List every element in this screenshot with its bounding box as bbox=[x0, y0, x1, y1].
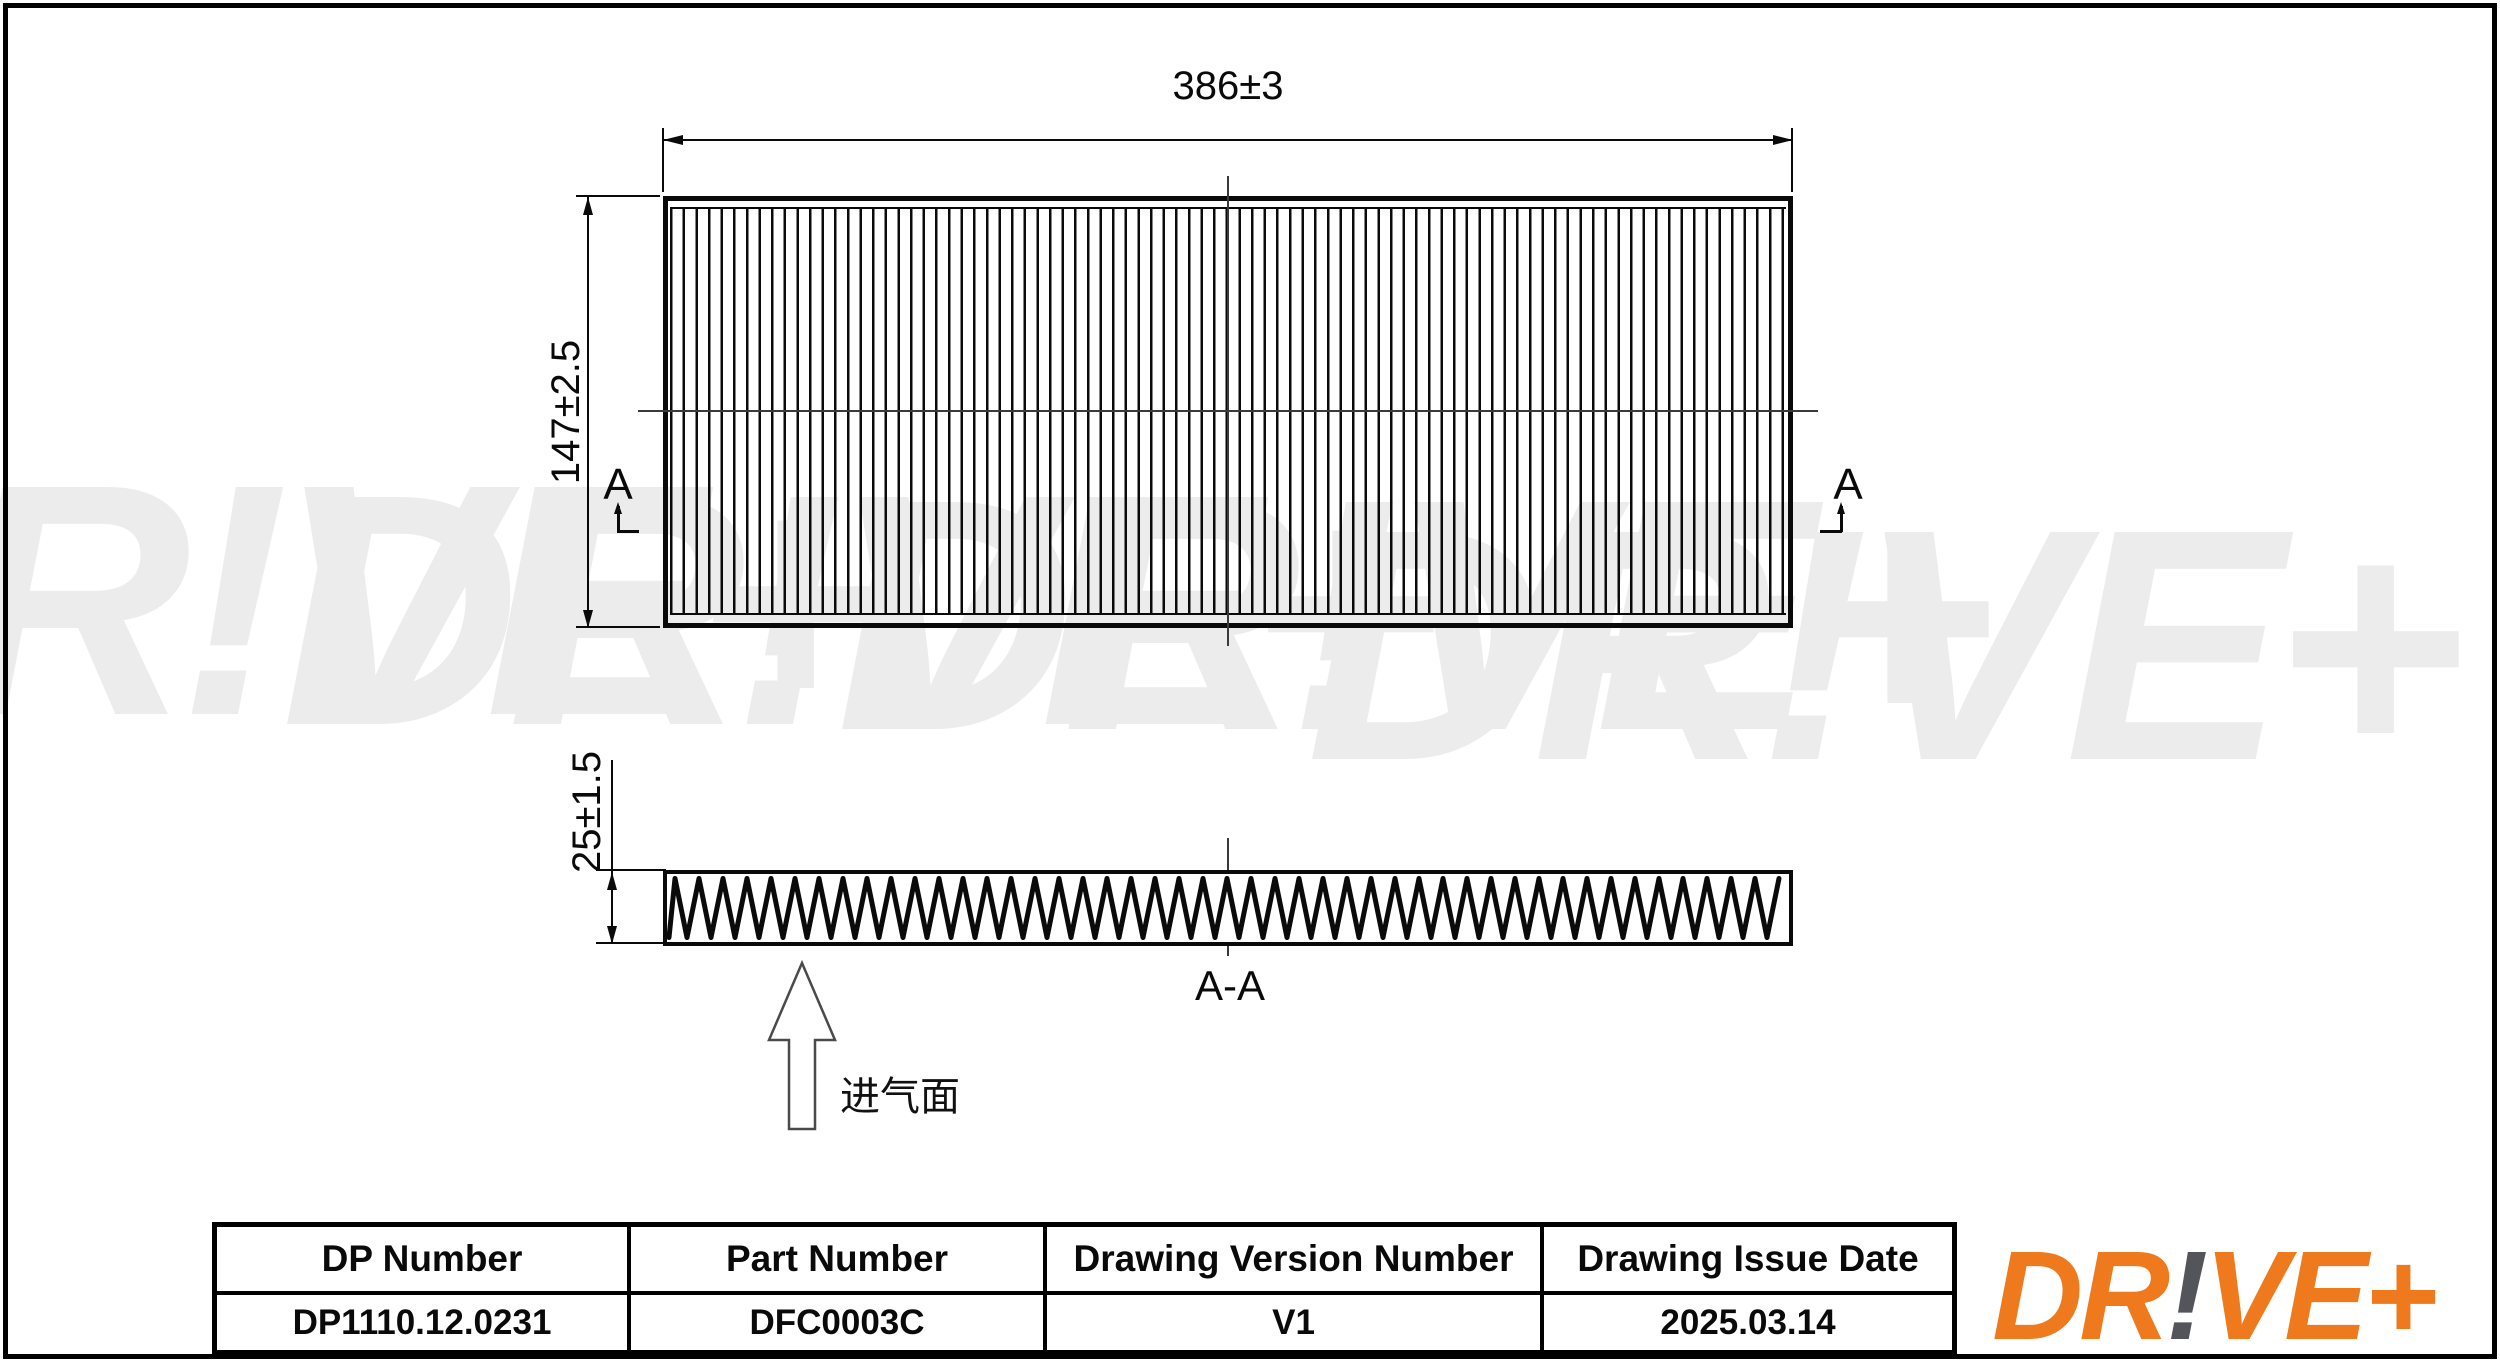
logo-text-ve-plus: VE+ bbox=[2204, 1223, 2434, 1362]
logo-exclamation: ! bbox=[2166, 1223, 2204, 1362]
filter-section-view-outline bbox=[663, 870, 1793, 946]
logo-text-dr: DR bbox=[1992, 1223, 2166, 1362]
dimension-line-width bbox=[663, 139, 1793, 141]
intake-face-label: 进气面 bbox=[840, 1064, 960, 1122]
width-dimension-label: 386±3 bbox=[1128, 64, 1328, 109]
issue-date-header: Drawing Issue Date bbox=[1544, 1227, 1952, 1291]
section-marker-arrow bbox=[1837, 502, 1845, 514]
pleat-wave-pattern bbox=[667, 874, 1789, 942]
dimension-line-thickness bbox=[611, 760, 613, 944]
dimension-arrow-up bbox=[583, 197, 593, 215]
airflow-up-arrow-icon bbox=[765, 960, 839, 1132]
thickness-dimension-label: 25±1.5 bbox=[567, 712, 607, 912]
drawing-version-header: Drawing Version Number bbox=[1047, 1227, 1540, 1291]
section-marker-letter-right: A bbox=[1826, 460, 1870, 510]
drive-plus-logo: DR!VE+ bbox=[1948, 1238, 2478, 1353]
section-marker-line bbox=[617, 530, 639, 533]
height-dimension-label: 147±2.5 bbox=[544, 302, 588, 522]
issue-date-value: 2025.03.14 bbox=[1544, 1295, 1952, 1350]
dp-number-value: DP1110.12.0231 bbox=[217, 1295, 627, 1350]
title-block: DP Number Part Number Drawing Version Nu… bbox=[212, 1222, 1957, 1355]
dimension-arrow-down bbox=[607, 926, 617, 944]
section-marker-line bbox=[1820, 530, 1842, 533]
drawing-sheet: DR!VE+ DR!VE+ DR!VE+ DR!VE+ 386±3 147±2.… bbox=[0, 0, 2500, 1362]
vertical-centerline bbox=[1227, 176, 1229, 646]
dimension-arrow-left bbox=[663, 135, 683, 145]
section-view-title: A-A bbox=[1150, 962, 1310, 1010]
drawing-version-value: V1 bbox=[1047, 1295, 1540, 1350]
section-marker-arrow bbox=[614, 502, 622, 514]
dimension-arrow-down bbox=[583, 610, 593, 628]
dimension-arrow-up bbox=[607, 872, 617, 890]
part-number-value: DFC0003C bbox=[631, 1295, 1043, 1350]
dp-number-header: DP Number bbox=[217, 1227, 627, 1291]
part-number-header: Part Number bbox=[631, 1227, 1043, 1291]
dimension-arrow-right bbox=[1773, 135, 1793, 145]
